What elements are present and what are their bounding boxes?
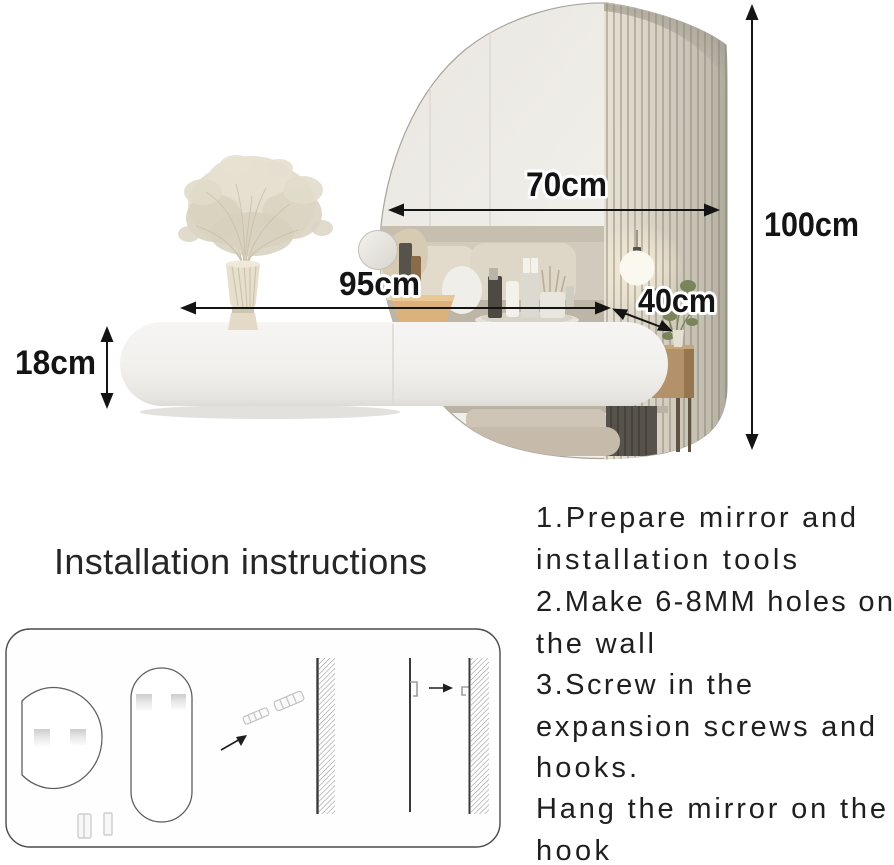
svg-text:3.Screw in the: 3.Screw in the (536, 669, 752, 701)
svg-text:expansion screws and: expansion screws and (536, 711, 875, 743)
svg-text:95cm: 95cm (339, 265, 420, 302)
svg-text:Installation instructions: Installation instructions (54, 541, 427, 582)
svg-text:1.Prepare mirror and: 1.Prepare mirror and (536, 502, 856, 534)
svg-text:hooks.: hooks. (536, 752, 637, 784)
svg-text:18cm: 18cm (15, 344, 96, 382)
svg-text:100cm: 100cm (764, 206, 859, 244)
svg-text:installation tools: installation tools (536, 544, 797, 576)
svg-text:70cm: 70cm (526, 166, 607, 204)
svg-text:Hang the mirror on the: Hang the mirror on the (536, 793, 886, 825)
svg-text:40cm: 40cm (638, 282, 716, 319)
